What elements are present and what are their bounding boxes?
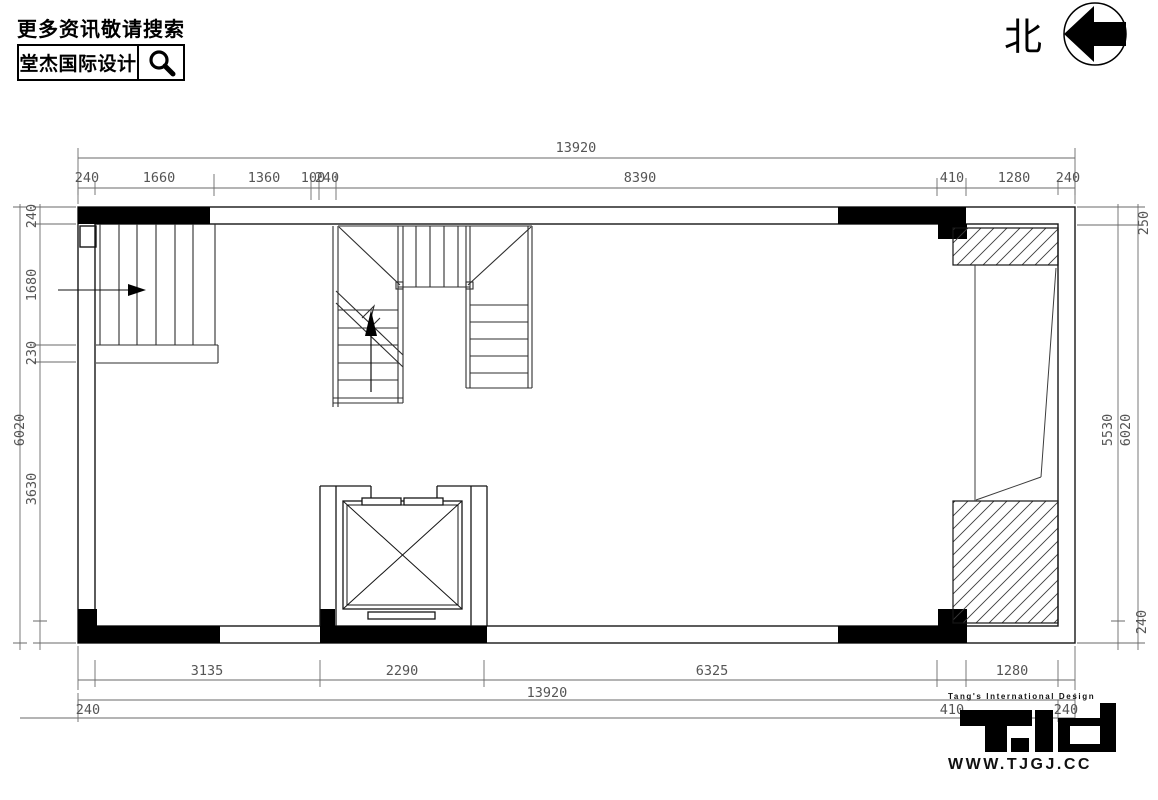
elevator-door-leaf (362, 498, 401, 505)
dim-label: 6020 (1118, 414, 1134, 447)
stair-upper-left (96, 224, 218, 363)
dim-label: 5530 (1100, 414, 1116, 447)
dim-label: 1360 (248, 170, 281, 186)
dim-label: 240 (75, 170, 99, 186)
dim-line-top-overall (78, 148, 1075, 204)
dim-line-bottom-segments (78, 646, 1075, 690)
dim-label: 3135 (191, 663, 224, 679)
tid-logo-icon (948, 703, 1138, 755)
dim-line-top-segments (78, 174, 1075, 200)
outer-walls (78, 207, 1075, 643)
footer-brand: Tang's International Design WWW.TJGJ.CC (948, 692, 1148, 774)
floor-plan-drawing: 13920 240 1660 1360 100 240 8390 410 128… (0, 0, 1158, 800)
footer-website: WWW.TJGJ.CC (948, 756, 1148, 774)
brand-logo: 堂杰国际设计 (17, 44, 185, 81)
right-void-zone (953, 228, 1058, 623)
dim-label: 3630 (24, 473, 40, 506)
wall-fills (78, 207, 967, 643)
elevator-shaft (320, 486, 487, 626)
wall-notch (80, 226, 96, 247)
hatched-void-bottom (953, 501, 1058, 623)
floor-plan-page: 13920 240 1660 1360 100 240 8390 410 128… (0, 0, 1158, 800)
dim-label: 240 (76, 702, 100, 718)
dim-label: 410 (940, 170, 964, 186)
dim-label: 6325 (696, 663, 729, 679)
dim-label: 230 (24, 341, 40, 365)
elevator-x (343, 501, 462, 609)
entry-arrow (58, 284, 146, 296)
hatched-void-top (953, 228, 1058, 265)
dim-label: 13920 (527, 685, 568, 701)
search-hint-text: 更多资讯敬请搜索 (17, 13, 185, 42)
elevator-door-leaf (404, 498, 443, 505)
dim-label: 8390 (624, 170, 657, 186)
dim-label: 250 (1136, 211, 1152, 235)
dim-label: 2290 (386, 663, 419, 679)
footer-tagline: Tang's International Design (948, 692, 1148, 701)
dim-label: 240 (1134, 610, 1150, 634)
elevator-sill (368, 612, 435, 619)
brand-name: 堂杰国际设计 (19, 46, 137, 79)
void-edge-lines (975, 265, 1056, 501)
north-arrow-icon (1061, 1, 1131, 69)
north-label: 北 (1004, 6, 1042, 61)
dim-label: 13920 (556, 140, 597, 156)
u-stair-core (333, 226, 532, 407)
search-icon (137, 46, 183, 79)
dim-label: 240 (1056, 170, 1080, 186)
dim-label: 1280 (998, 170, 1031, 186)
dim-label: 1680 (24, 269, 40, 302)
dim-label: 6020 (12, 414, 28, 447)
dim-label: 240 (24, 204, 40, 228)
dim-label: 240 (315, 170, 339, 186)
dim-line-bottom-edge (20, 700, 1075, 722)
dim-label: 1280 (996, 663, 1029, 679)
dim-label: 1660 (143, 170, 176, 186)
